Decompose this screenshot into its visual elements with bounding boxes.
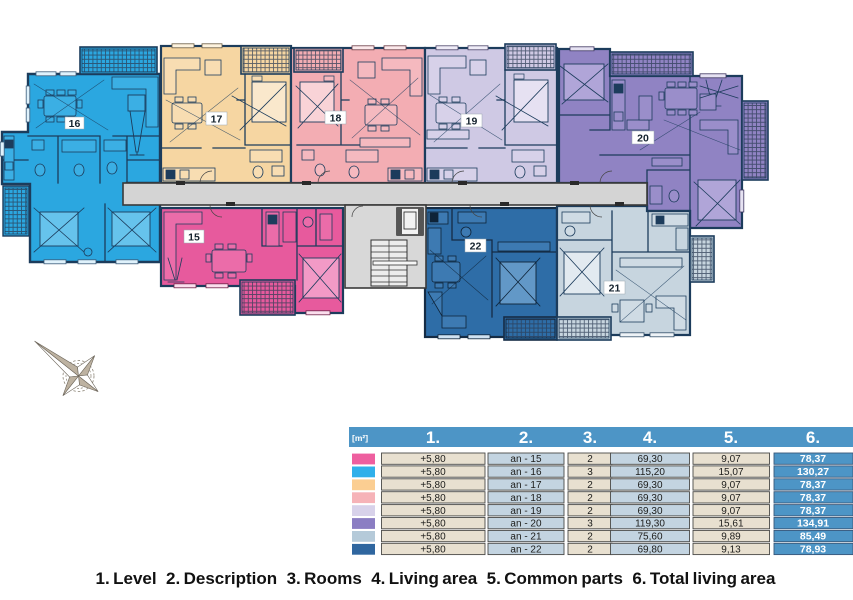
svg-text:69,30: 69,30 [637, 506, 662, 517]
svg-text:69,30: 69,30 [637, 454, 662, 465]
svg-text:+5,80: +5,80 [420, 454, 446, 465]
svg-text:3: 3 [587, 519, 593, 530]
svg-text:119,30: 119,30 [635, 519, 665, 530]
svg-text:2: 2 [587, 506, 593, 517]
svg-text:20: 20 [637, 133, 649, 145]
svg-text:5.: 5. [724, 428, 738, 447]
svg-text:17: 17 [211, 114, 223, 126]
svg-text:22: 22 [470, 241, 482, 253]
svg-text:an - 22: an - 22 [510, 545, 542, 556]
svg-text:15,61: 15,61 [718, 519, 743, 530]
svg-text:3: 3 [587, 467, 593, 478]
svg-text:2: 2 [587, 545, 593, 556]
svg-text:130,27: 130,27 [797, 466, 829, 478]
svg-text:9,07: 9,07 [721, 493, 741, 504]
svg-text:2: 2 [587, 493, 593, 504]
svg-text:9,07: 9,07 [721, 506, 741, 517]
svg-text:78,93: 78,93 [800, 544, 826, 556]
svg-text:[m²]: [m²] [352, 433, 368, 443]
svg-text:9,07: 9,07 [721, 480, 741, 491]
svg-text:9,89: 9,89 [721, 532, 741, 543]
svg-text:2: 2 [587, 454, 593, 465]
svg-text:2: 2 [587, 532, 593, 543]
svg-text:2.: 2. [519, 428, 533, 447]
svg-text:an - 16: an - 16 [510, 467, 542, 478]
svg-text:69,30: 69,30 [637, 493, 662, 504]
svg-text:15,07: 15,07 [718, 467, 743, 478]
svg-text:19: 19 [466, 116, 478, 128]
svg-text:3.: 3. [583, 428, 597, 447]
svg-text:78,37: 78,37 [800, 479, 826, 491]
svg-text:an - 17: an - 17 [510, 480, 542, 491]
svg-text:85,49: 85,49 [800, 531, 826, 543]
svg-text:+5,80: +5,80 [420, 545, 446, 556]
svg-text:+5,80: +5,80 [420, 519, 446, 530]
svg-text:+5,80: +5,80 [420, 493, 446, 504]
svg-text:an - 15: an - 15 [510, 454, 542, 465]
svg-text:an - 18: an - 18 [510, 493, 542, 504]
svg-text:9,07: 9,07 [721, 454, 741, 465]
svg-text:an - 20: an - 20 [510, 519, 542, 530]
svg-text:16: 16 [69, 118, 81, 130]
svg-text:2: 2 [587, 480, 593, 491]
svg-text:9,13: 9,13 [721, 545, 741, 556]
svg-text:78,37: 78,37 [800, 492, 826, 504]
svg-text:75,60: 75,60 [637, 532, 662, 543]
svg-text:+5,80: +5,80 [420, 480, 446, 491]
svg-text:4.: 4. [643, 428, 657, 447]
svg-text:an - 19: an - 19 [510, 506, 542, 517]
svg-text:21: 21 [609, 283, 621, 295]
svg-text:18: 18 [330, 113, 342, 125]
svg-text:78,37: 78,37 [800, 453, 826, 465]
svg-text:69,80: 69,80 [637, 545, 662, 556]
svg-text:+5,80: +5,80 [420, 467, 446, 478]
svg-text:1.: 1. [426, 428, 440, 447]
svg-text:+5,80: +5,80 [420, 532, 446, 543]
svg-text:15: 15 [188, 232, 200, 244]
svg-text:an - 21: an - 21 [510, 532, 542, 543]
svg-text:134,91: 134,91 [797, 518, 829, 530]
svg-text:69,30: 69,30 [637, 480, 662, 491]
svg-text:115,20: 115,20 [635, 467, 665, 478]
svg-text:78,37: 78,37 [800, 505, 826, 517]
svg-text:6.: 6. [806, 428, 820, 447]
svg-text:+5,80: +5,80 [420, 506, 446, 517]
